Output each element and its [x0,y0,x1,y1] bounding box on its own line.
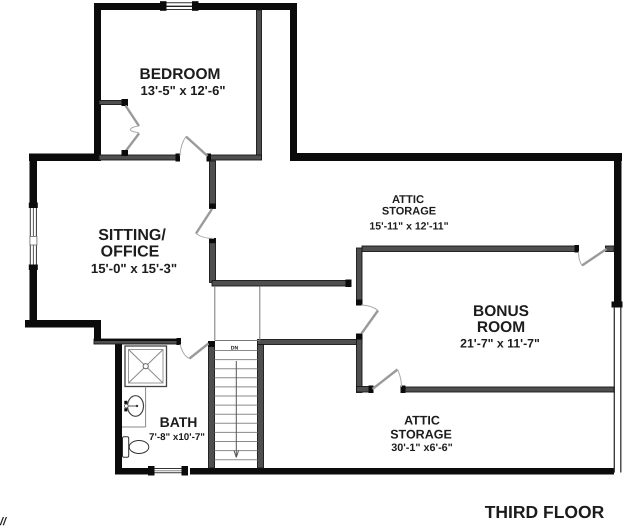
svg-text:DN: DN [231,345,239,351]
svg-text:ATTIC: ATTIC [392,194,424,206]
svg-text:30'-1" x6'-6": 30'-1" x6'-6" [391,442,453,454]
svg-text:13'-5" x 12'-6": 13'-5" x 12'-6" [140,83,225,98]
svg-text:BONUS: BONUS [473,303,529,320]
svg-text:STORAGE: STORAGE [382,206,436,218]
svg-text:ROOM: ROOM [477,319,525,336]
svg-text:BATH: BATH [160,414,198,430]
svg-text:15'-11" x 12'-11": 15'-11" x 12'-11" [369,221,448,233]
svg-text:ATTIC: ATTIC [404,414,440,428]
svg-text:OFFICE: OFFICE [101,244,160,261]
svg-text:SITTING/: SITTING/ [98,227,166,244]
svg-text:STORAGE: STORAGE [390,428,452,442]
svg-text:7'-8" x10'-7": 7'-8" x10'-7" [149,432,205,443]
svg-text:BEDROOM: BEDROOM [140,66,221,83]
svg-text:THIRD FLOOR: THIRD FLOOR [485,502,605,522]
svg-text:21'-7" x 11'-7": 21'-7" x 11'-7" [460,337,540,351]
svg-text:15'-0" x 15'-3": 15'-0" x 15'-3" [91,261,177,276]
